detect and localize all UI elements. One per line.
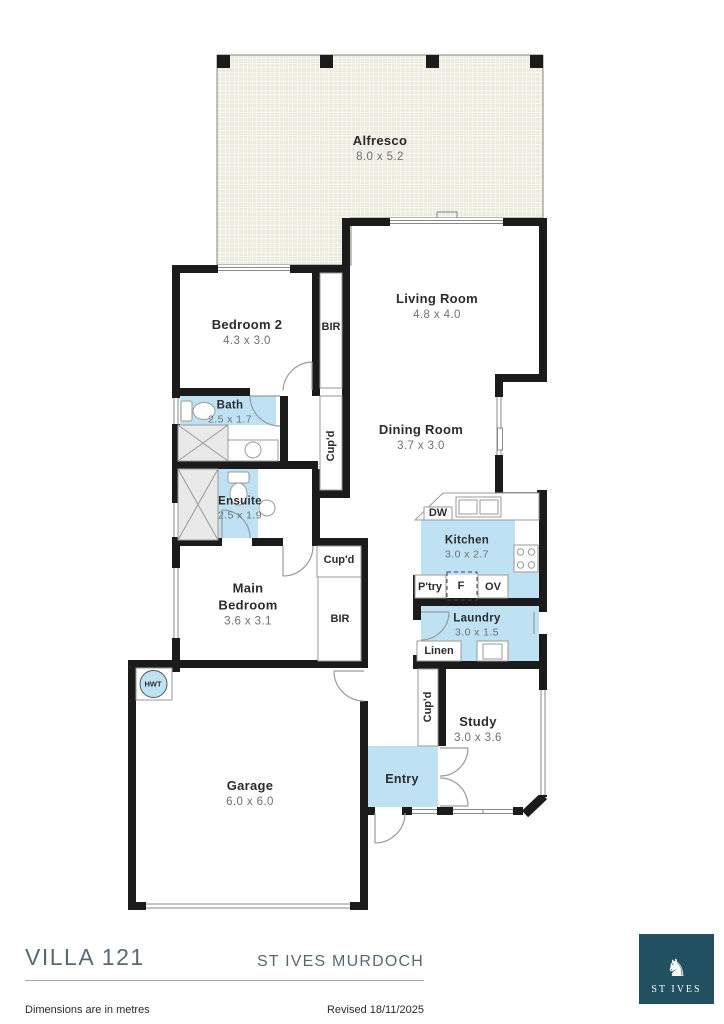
room-label-living: Living Room 4.8 x 4.0: [396, 291, 478, 323]
label-hwt: HWT: [144, 680, 161, 689]
room-label-entry: Entry: [385, 771, 418, 787]
label-dw: DW: [429, 507, 447, 519]
label-pantry: P'try: [418, 581, 442, 593]
room-label-study: Study 3.0 x 3.6: [454, 714, 502, 746]
fixtures: [136, 273, 539, 746]
label-bir-bed2: BIR: [322, 321, 341, 333]
room-label-bedroom2: Bedroom 2 4.3 x 3.0: [212, 317, 283, 349]
room-label-ensuite: Ensuite 2.5 x 1.9: [218, 495, 262, 524]
room-label-dining: Dining Room 3.7 x 3.0: [379, 422, 463, 454]
floorplan-page: Alfresco 8.0 x 5.2 Living Room 4.8 x 4.0…: [0, 0, 724, 1024]
room-label-alfresco: Alfresco 8.0 x 5.2: [353, 133, 407, 165]
room-label-garage: Garage 6.0 x 6.0: [226, 778, 274, 810]
room-label-bath: Bath 2.5 x 1.7: [208, 399, 252, 428]
plan-title: VILLA 121: [25, 944, 145, 971]
label-cupd-study: Cup'd: [422, 692, 434, 723]
cooktop: [514, 545, 538, 572]
label-cupd-main: Cup'd: [324, 554, 355, 566]
room-label-kitchen: Kitchen 3.0 x 2.7: [445, 534, 489, 563]
label-cupd-hall: Cup'd: [325, 431, 337, 462]
estate-name: ST IVES MURDOCH: [257, 953, 424, 971]
revision-date: Revised 18/11/2025: [25, 1004, 424, 1016]
st-ives-logo: ♞ ST IVES: [639, 934, 714, 1004]
label-oven: OV: [485, 581, 501, 593]
bath-shower: [178, 425, 228, 461]
footer-divider: [25, 980, 424, 981]
room-label-laundry: Laundry 3.0 x 1.5: [453, 612, 500, 641]
label-linen: Linen: [424, 645, 453, 657]
logo-text: ST IVES: [651, 984, 701, 995]
ensuite-shower: [178, 469, 218, 540]
footer-title-row: VILLA 121 ST IVES MURDOCH: [25, 944, 424, 971]
horse-icon: ♞: [666, 957, 688, 981]
label-bir-main: BIR: [331, 613, 350, 625]
room-label-main-bedroom: Main Bedroom 3.6 x 3.1: [218, 581, 277, 630]
label-fridge: F: [458, 580, 465, 592]
bath-basin: [245, 442, 261, 458]
